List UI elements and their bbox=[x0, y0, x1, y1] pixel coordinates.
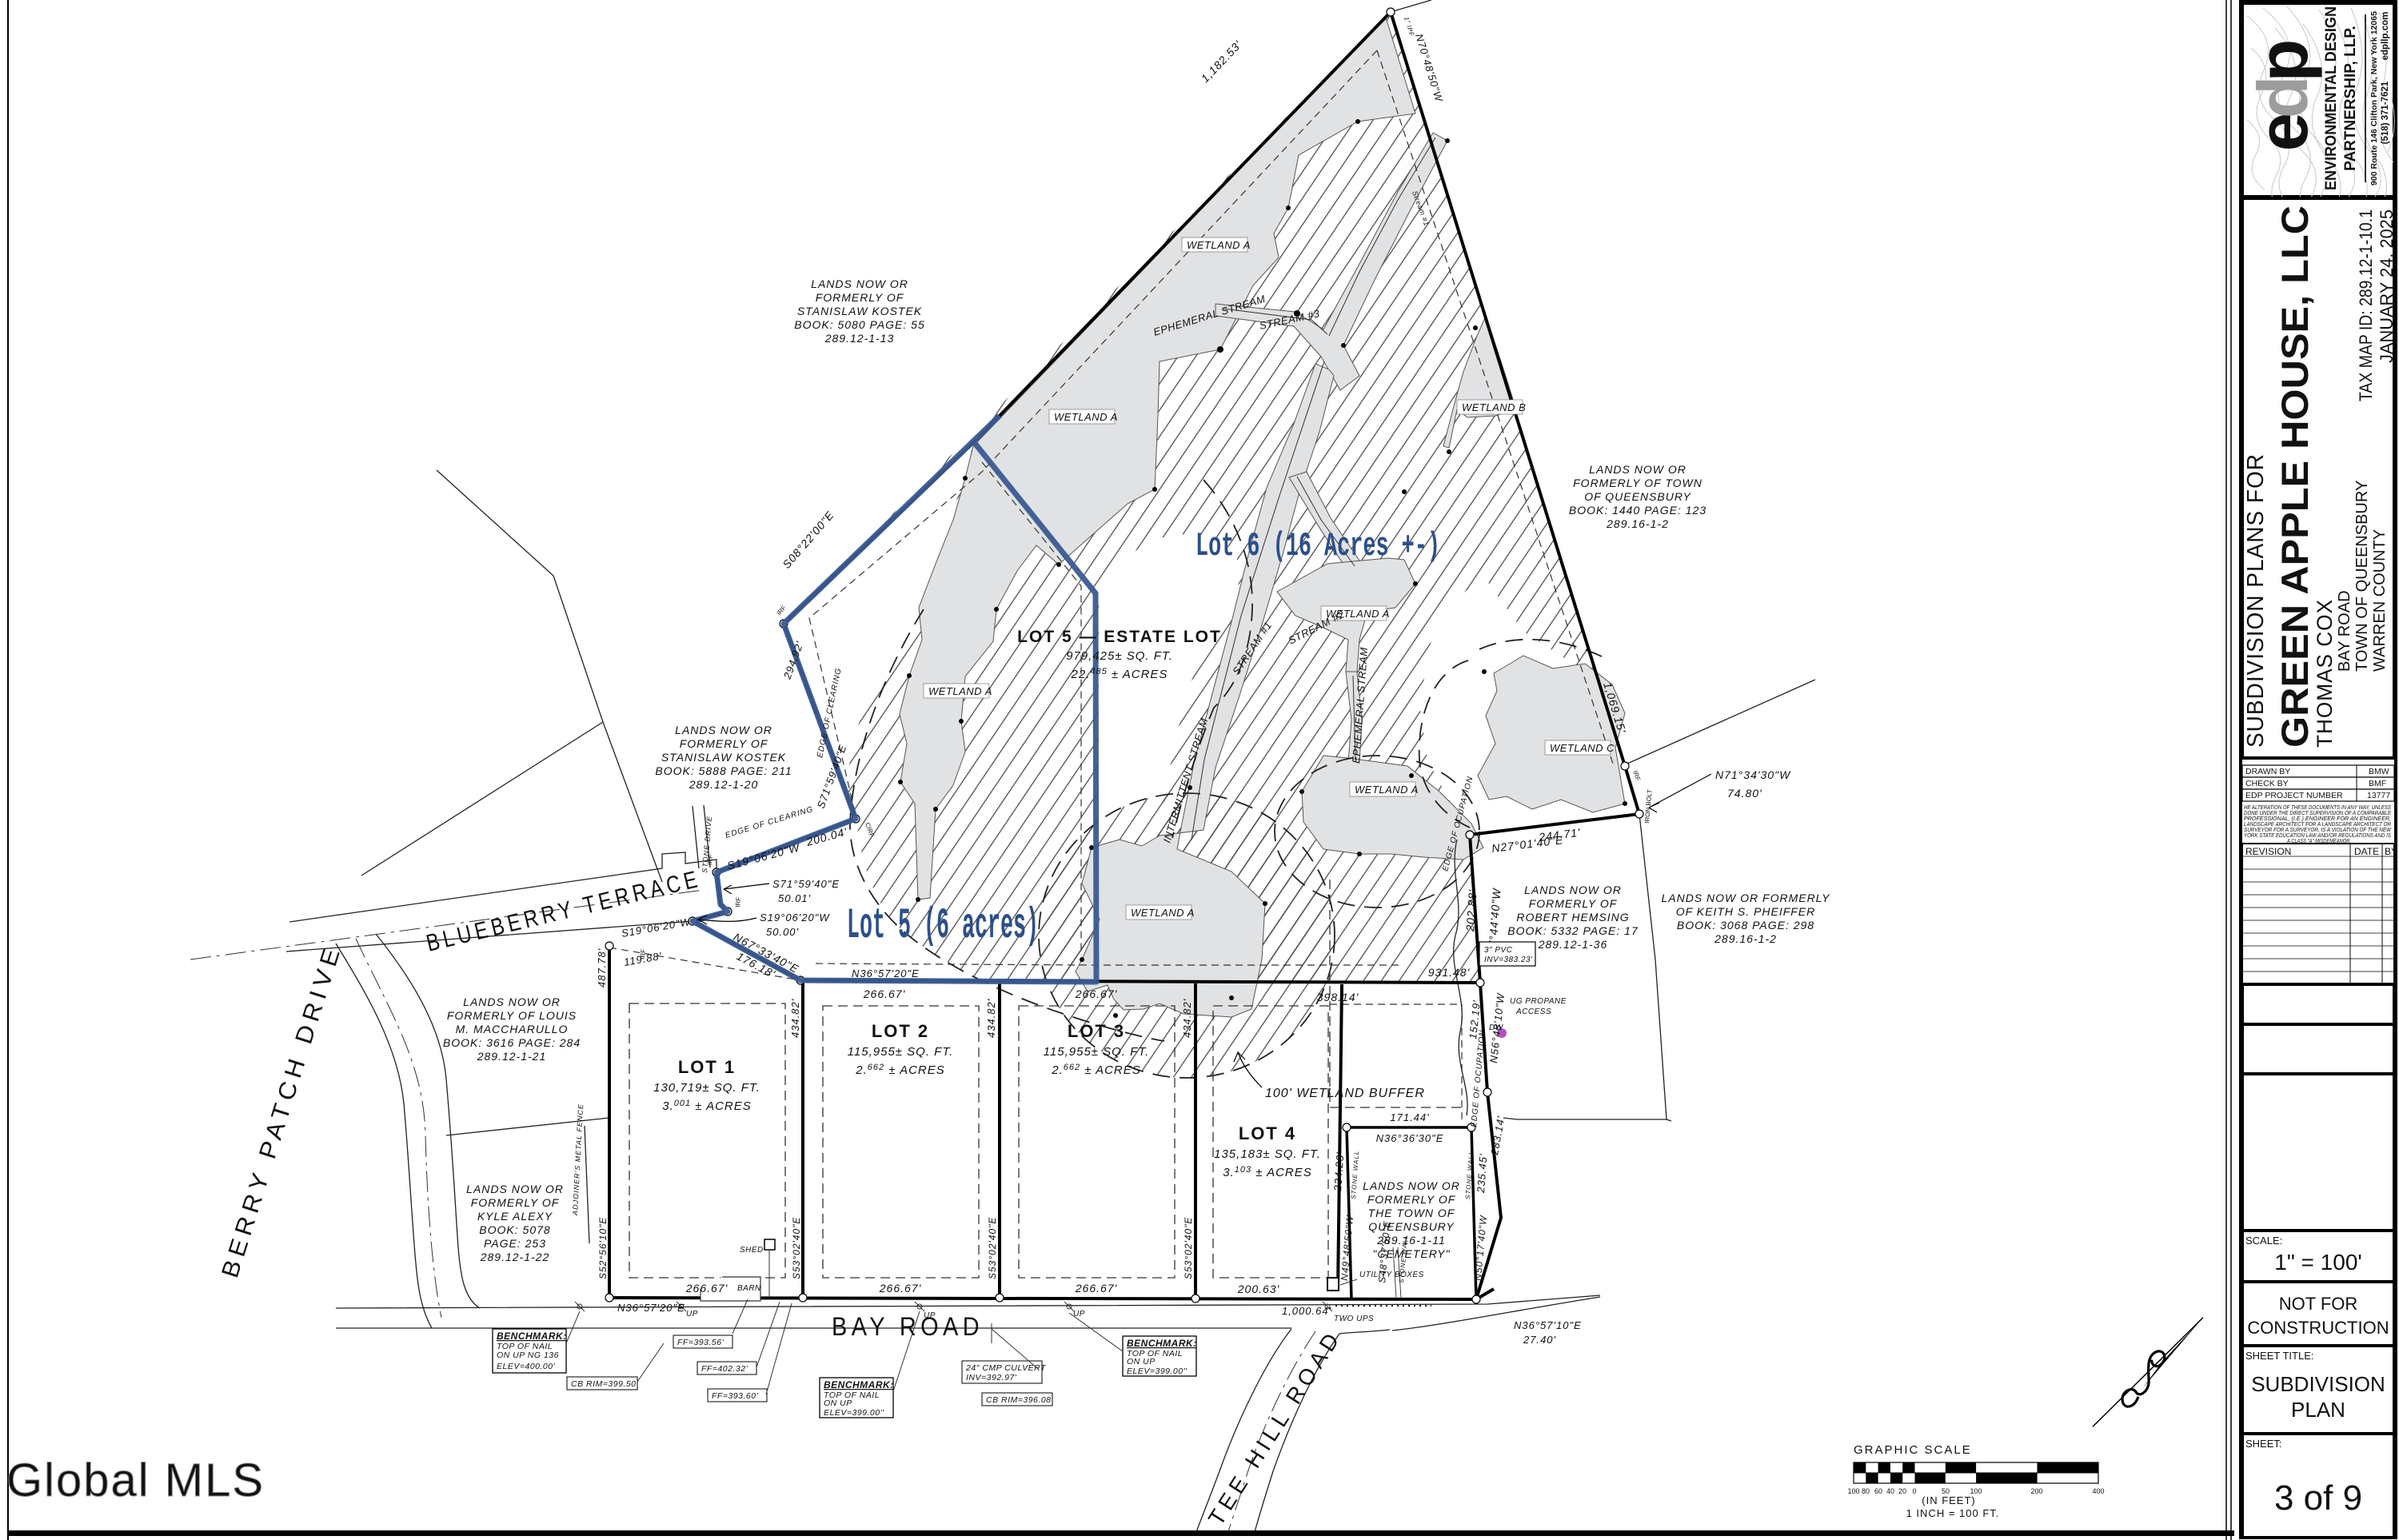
svg-text:SHED: SHED bbox=[740, 1246, 764, 1255]
svg-text:135,183± SQ. FT.: 135,183± SQ. FT. bbox=[1214, 1147, 1321, 1161]
svg-text:S53°02'40"E: S53°02'40"E bbox=[1183, 1217, 1194, 1279]
svg-text:ELEV=400.00': ELEV=400.00' bbox=[497, 1362, 556, 1371]
svg-text:CB RIM=396.08': CB RIM=396.08' bbox=[986, 1395, 1053, 1405]
svg-text:0: 0 bbox=[1912, 1487, 1916, 1495]
svg-text:115,955± SQ. FT.: 115,955± SQ. FT. bbox=[1044, 1045, 1150, 1059]
svg-text:BAY ROAD: BAY ROAD bbox=[2336, 590, 2353, 672]
svg-text:115,955± SQ. FT.: 115,955± SQ. FT. bbox=[848, 1045, 954, 1059]
svg-text:LANDS NOW OR: LANDS NOW OR bbox=[466, 1183, 564, 1195]
svg-text:289.12-1-36: 289.12-1-36 bbox=[1538, 938, 1608, 951]
svg-text:ROBERT HEMSING: ROBERT HEMSING bbox=[1516, 911, 1629, 924]
svg-text:BOOK: 5888 PAGE: 211: BOOK: 5888 PAGE: 211 bbox=[655, 764, 792, 777]
svg-text:TOWN OF QUEENSBURY: TOWN OF QUEENSBURY bbox=[2353, 481, 2371, 672]
svg-text:LANDS NOW OR: LANDS NOW OR bbox=[1363, 1179, 1460, 1192]
svg-text:ACCESS: ACCESS bbox=[1515, 1007, 1551, 1016]
svg-text:289.12-1-22: 289.12-1-22 bbox=[480, 1251, 550, 1263]
svg-text:IRF: IRF bbox=[639, 948, 647, 960]
svg-text:Global MLS: Global MLS bbox=[6, 1454, 265, 1506]
svg-text:S71°59'40"E: S71°59'40"E bbox=[772, 878, 840, 890]
svg-text:S53°02'40"E: S53°02'40"E bbox=[987, 1217, 998, 1279]
svg-text:GRAPHIC SCALE: GRAPHIC SCALE bbox=[1854, 1443, 1972, 1457]
svg-text:WETLAND A: WETLAND A bbox=[928, 685, 992, 697]
svg-text:ON UP: ON UP bbox=[824, 1398, 852, 1408]
svg-text:200: 200 bbox=[2030, 1487, 2042, 1495]
svg-text:FF=393.60': FF=393.60' bbox=[712, 1391, 759, 1401]
svg-text:FF=393.56': FF=393.56' bbox=[677, 1338, 724, 1347]
svg-text:SHEET:: SHEET: bbox=[2245, 1438, 2282, 1450]
svg-text:LANDS NOW OR: LANDS NOW OR bbox=[1524, 884, 1622, 896]
svg-text:edp: edp bbox=[2243, 42, 2322, 152]
svg-text:ELEV=399.00'': ELEV=399.00'' bbox=[824, 1408, 884, 1418]
svg-text:100: 100 bbox=[1847, 1487, 1859, 1495]
svg-text:LOT 3: LOT 3 bbox=[1068, 1021, 1125, 1041]
svg-text:IRF: IRF bbox=[706, 854, 714, 865]
svg-text:289.16-1-2: 289.16-1-2 bbox=[1714, 932, 1777, 945]
svg-text:1" = 100': 1" = 100' bbox=[2274, 1250, 2361, 1275]
svg-text:LOT 4: LOT 4 bbox=[1239, 1123, 1296, 1143]
svg-text:S53°02'40"E: S53°02'40"E bbox=[791, 1217, 802, 1279]
svg-text:DW: DW bbox=[1489, 1023, 1504, 1032]
svg-text:27.40': 27.40' bbox=[1523, 1334, 1556, 1346]
svg-text:SCALE:: SCALE: bbox=[2245, 1235, 2282, 1247]
svg-text:WARREN COUNTY: WARREN COUNTY bbox=[2371, 529, 2389, 672]
svg-text:UG PROPANE: UG PROPANE bbox=[1510, 997, 1567, 1006]
svg-text:ENVIRONMENTAL DESIGN: ENVIRONMENTAL DESIGN bbox=[2323, 6, 2340, 190]
svg-text:N36°57'10"E: N36°57'10"E bbox=[1514, 1319, 1582, 1331]
svg-text:80: 80 bbox=[1862, 1487, 1870, 1495]
svg-text:TAX MAP ID: 289.12-1-10.1: TAX MAP ID: 289.12-1-10.1 bbox=[2356, 209, 2376, 401]
svg-text:BMF: BMF bbox=[2369, 779, 2386, 788]
svg-text:BENCHMARK:: BENCHMARK: bbox=[497, 1331, 567, 1342]
svg-text:CB RIM=399.50': CB RIM=399.50' bbox=[571, 1379, 638, 1389]
svg-text:STANISLAW KOSTEK: STANISLAW KOSTEK bbox=[661, 751, 786, 764]
svg-text:Lot 5 (6 acres): Lot 5 (6 acres) bbox=[847, 902, 1039, 951]
svg-text:STANISLAW KOSTEK: STANISLAW KOSTEK bbox=[797, 305, 922, 317]
svg-text:LANDS NOW OR: LANDS NOW OR bbox=[1589, 463, 1686, 476]
svg-text:BOOK: 5078: BOOK: 5078 bbox=[479, 1223, 550, 1236]
svg-text:BOOK: 3616 PAGE: 284: BOOK: 3616 PAGE: 284 bbox=[443, 1036, 581, 1049]
svg-text:CHECK BY: CHECK BY bbox=[2245, 779, 2289, 788]
svg-text:SUBDIVISION PLANS FOR: SUBDIVISION PLANS FOR bbox=[2243, 453, 2269, 748]
svg-text:LOT 2: LOT 2 bbox=[872, 1021, 929, 1041]
svg-text:KYLE ALEXY: KYLE ALEXY bbox=[477, 1210, 553, 1223]
svg-text:UTILITY BOXES: UTILITY BOXES bbox=[1359, 1271, 1424, 1279]
svg-text:1,000.64': 1,000.64' bbox=[1282, 1305, 1331, 1317]
svg-text:M. MACCHARULLO: M. MACCHARULLO bbox=[456, 1023, 569, 1035]
svg-text:434.82': 434.82' bbox=[789, 999, 801, 1038]
svg-text:434.82': 434.82' bbox=[985, 999, 997, 1038]
svg-text:WETLAND C: WETLAND C bbox=[1550, 742, 1615, 754]
svg-text:IRF: IRF bbox=[734, 896, 742, 908]
svg-text:266.67': 266.67' bbox=[863, 987, 906, 1000]
svg-text:3 of 9: 3 of 9 bbox=[2274, 1478, 2362, 1518]
svg-text:BENCHMARK:: BENCHMARK: bbox=[1127, 1338, 1197, 1349]
svg-text:N71°34'30"W: N71°34'30"W bbox=[1715, 768, 1791, 781]
svg-text:398.14': 398.14' bbox=[1317, 991, 1359, 1003]
svg-text:FORMERLY OF: FORMERLY OF bbox=[471, 1196, 560, 1209]
svg-text:434.82': 434.82' bbox=[1181, 999, 1193, 1038]
svg-text:WETLAND A: WETLAND A bbox=[1131, 907, 1195, 919]
svg-text:TWO UPS: TWO UPS bbox=[1334, 1315, 1374, 1323]
svg-text:NOT FOR: NOT FOR bbox=[2279, 1294, 2358, 1314]
svg-text:171.44': 171.44' bbox=[1390, 1111, 1429, 1123]
svg-text:LOT 5 — ESTATE LOT: LOT 5 — ESTATE LOT bbox=[1017, 628, 1222, 646]
svg-text:WETLAND B: WETLAND B bbox=[1462, 401, 1526, 413]
svg-text:N36°57'20"E: N36°57'20"E bbox=[852, 967, 920, 979]
svg-text:REVISION: REVISION bbox=[2245, 846, 2291, 857]
svg-text:FF=402.32': FF=402.32' bbox=[701, 1364, 748, 1374]
svg-text:487.78': 487.78' bbox=[596, 948, 608, 987]
svg-text:266.67': 266.67' bbox=[1075, 1282, 1118, 1295]
svg-text:60: 60 bbox=[1874, 1487, 1882, 1495]
svg-text:FORMERLY OF: FORMERLY OF bbox=[1367, 1193, 1456, 1206]
svg-text:13777: 13777 bbox=[2367, 791, 2390, 800]
svg-text:DATE: DATE bbox=[2354, 846, 2379, 857]
svg-text:OF KEITH S. PHEIFFER: OF KEITH S. PHEIFFER bbox=[1676, 905, 1816, 918]
svg-text:FORMERLY OF LOUIS: FORMERLY OF LOUIS bbox=[447, 1009, 577, 1022]
svg-text:N36°57'20"E: N36°57'20"E bbox=[617, 1302, 685, 1314]
svg-text:ON UP: ON UP bbox=[1127, 1357, 1156, 1366]
svg-text:130,719± SQ. FT.: 130,719± SQ. FT. bbox=[653, 1081, 760, 1095]
svg-text:289.16-1-2: 289.16-1-2 bbox=[1606, 517, 1669, 530]
svg-text:SHEET TITLE:: SHEET TITLE: bbox=[2245, 1350, 2314, 1362]
svg-text:266.67': 266.67' bbox=[1075, 987, 1118, 1000]
svg-text:SUBDIVISION: SUBDIVISION bbox=[2251, 1372, 2385, 1396]
svg-text:BOOK: 3068 PAGE: 298: BOOK: 3068 PAGE: 298 bbox=[1677, 919, 1814, 932]
svg-text:LANDS NOW OR FORMERLY: LANDS NOW OR FORMERLY bbox=[1661, 892, 1830, 904]
svg-text:BARN: BARN bbox=[737, 1284, 761, 1293]
svg-text:BOOK: 1440 PAGE: 123: BOOK: 1440 PAGE: 123 bbox=[1569, 504, 1706, 517]
svg-text:(IN FEET): (IN FEET) bbox=[1922, 1494, 1976, 1506]
svg-text:edpllp.com: edpllp.com bbox=[2381, 12, 2390, 61]
svg-text:THE TOWN OF: THE TOWN OF bbox=[1368, 1207, 1455, 1219]
svg-text:Lot 6 (16 Acres +-): Lot 6 (16 Acres +-) bbox=[1196, 527, 1440, 565]
svg-text:24" CMP CULVERT: 24" CMP CULVERT bbox=[965, 1363, 1047, 1373]
svg-text:LOT 1: LOT 1 bbox=[678, 1057, 736, 1077]
svg-text:20: 20 bbox=[1898, 1487, 1906, 1495]
svg-text:UP: UP bbox=[686, 1310, 698, 1319]
svg-text:PLAN: PLAN bbox=[2291, 1398, 2345, 1422]
svg-text:BENCHMARK:: BENCHMARK: bbox=[824, 1379, 894, 1390]
svg-text:WETLAND A: WETLAND A bbox=[1187, 239, 1251, 251]
svg-text:289.12-1-20: 289.12-1-20 bbox=[689, 778, 759, 791]
svg-text:289.12-1-21: 289.12-1-21 bbox=[477, 1050, 547, 1063]
svg-text:PAGE: 253: PAGE: 253 bbox=[484, 1237, 546, 1250]
svg-text:266.67': 266.67' bbox=[685, 1282, 728, 1295]
svg-text:S19°06'20"W: S19°06'20"W bbox=[760, 912, 830, 924]
svg-text:979,425± SQ. FT.: 979,425± SQ. FT. bbox=[1066, 649, 1173, 663]
svg-text:LANDS NOW OR: LANDS NOW OR bbox=[811, 277, 908, 290]
svg-text:BY: BY bbox=[2385, 846, 2397, 857]
svg-text:EDP PROJECT NUMBER: EDP PROJECT NUMBER bbox=[2245, 791, 2343, 800]
svg-text:ELEV=399.00'': ELEV=399.00'' bbox=[1127, 1366, 1188, 1376]
svg-text:JANUARY 24, 2025: JANUARY 24, 2025 bbox=[2377, 209, 2397, 363]
svg-text:100' WETLAND BUFFER: 100' WETLAND BUFFER bbox=[1265, 1087, 1425, 1100]
svg-text:50.01': 50.01' bbox=[778, 892, 811, 904]
svg-text:CONSTRUCTION: CONSTRUCTION bbox=[2247, 1318, 2389, 1338]
svg-text:WETLAND A: WETLAND A bbox=[1054, 411, 1118, 423]
svg-text:WETLAND A: WETLAND A bbox=[1355, 784, 1419, 796]
svg-text:LANDS NOW OR: LANDS NOW OR bbox=[463, 995, 561, 1008]
svg-text:DRAWN BY: DRAWN BY bbox=[2245, 767, 2290, 776]
svg-text:FORMERLY OF: FORMERLY OF bbox=[1529, 897, 1618, 910]
svg-text:400: 400 bbox=[2092, 1487, 2104, 1495]
svg-text:LANDS NOW OR: LANDS NOW OR bbox=[675, 724, 772, 736]
svg-text:74.80': 74.80' bbox=[1727, 787, 1762, 800]
svg-text:N36°36'30"E: N36°36'30"E bbox=[1376, 1132, 1444, 1144]
svg-text:FORMERLY OF: FORMERLY OF bbox=[816, 291, 904, 304]
svg-text:BAY ROAD: BAY ROAD bbox=[832, 1312, 984, 1341]
svg-text:22.485 ± ACRES: 22.485 ± ACRES bbox=[1071, 667, 1168, 681]
svg-text:900 Route 146 Clifton Park, Ne: 900 Route 146 Clifton Park, New York 120… bbox=[2369, 11, 2379, 186]
svg-text:FORMERLY OF TOWN: FORMERLY OF TOWN bbox=[1573, 477, 1702, 489]
svg-text:1 INCH = 100 FT.: 1 INCH = 100 FT. bbox=[1906, 1507, 2000, 1519]
svg-text:S52°56'10"E: S52°56'10"E bbox=[597, 1217, 609, 1279]
svg-text:40: 40 bbox=[1886, 1487, 1894, 1495]
svg-text:289.12-1-13: 289.12-1-13 bbox=[824, 332, 895, 345]
svg-text:(518) 371-7621: (518) 371-7621 bbox=[2381, 81, 2390, 144]
svg-text:PARTNERSHIP, LLP.: PARTNERSHIP, LLP. bbox=[2342, 26, 2359, 171]
svg-text:931.48': 931.48' bbox=[1428, 966, 1471, 979]
svg-text:INV=383.23': INV=383.23' bbox=[1484, 956, 1533, 964]
svg-text:BOOK: 5080 PAGE: 55: BOOK: 5080 PAGE: 55 bbox=[794, 318, 924, 331]
svg-text:200.63': 200.63' bbox=[1237, 1283, 1280, 1295]
svg-text:266.67': 266.67' bbox=[879, 1282, 922, 1295]
svg-text:BOOK: 5332 PAGE: 17: BOOK: 5332 PAGE: 17 bbox=[1507, 924, 1639, 937]
svg-text:3" PVC: 3" PVC bbox=[1484, 946, 1513, 955]
svg-text:OF QUEENSBURY: OF QUEENSBURY bbox=[1584, 490, 1691, 503]
svg-text:FORMERLY OF: FORMERLY OF bbox=[680, 737, 768, 750]
svg-text:50.00': 50.00' bbox=[766, 926, 799, 938]
svg-text:UP: UP bbox=[924, 1311, 936, 1320]
svg-text:BMW: BMW bbox=[2369, 767, 2389, 776]
svg-text:GREEN APPLE HOUSE, LLC: GREEN APPLE HOUSE, LLC bbox=[2273, 205, 2316, 748]
svg-text:ON UP NG 136: ON UP NG 136 bbox=[497, 1350, 559, 1360]
svg-text:THOMAS COX: THOMAS COX bbox=[2313, 599, 2337, 748]
svg-text:INV=392.97': INV=392.97' bbox=[966, 1373, 1017, 1382]
